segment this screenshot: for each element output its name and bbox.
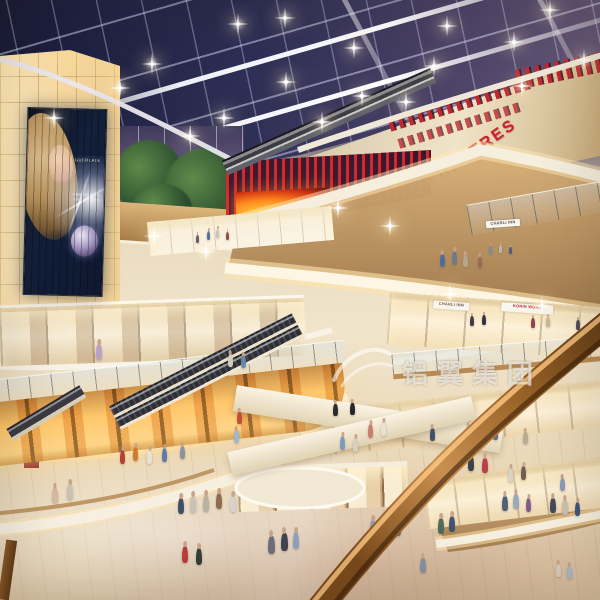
mall-atrium-rendering: THEATRES GUERLAIN [0,0,600,600]
wooden-handrail [0,0,600,600]
watermark: 铝翼集团 [330,336,592,408]
watermark-text: 铝翼集团 [402,354,542,391]
watermark-logo-icon [330,340,400,394]
